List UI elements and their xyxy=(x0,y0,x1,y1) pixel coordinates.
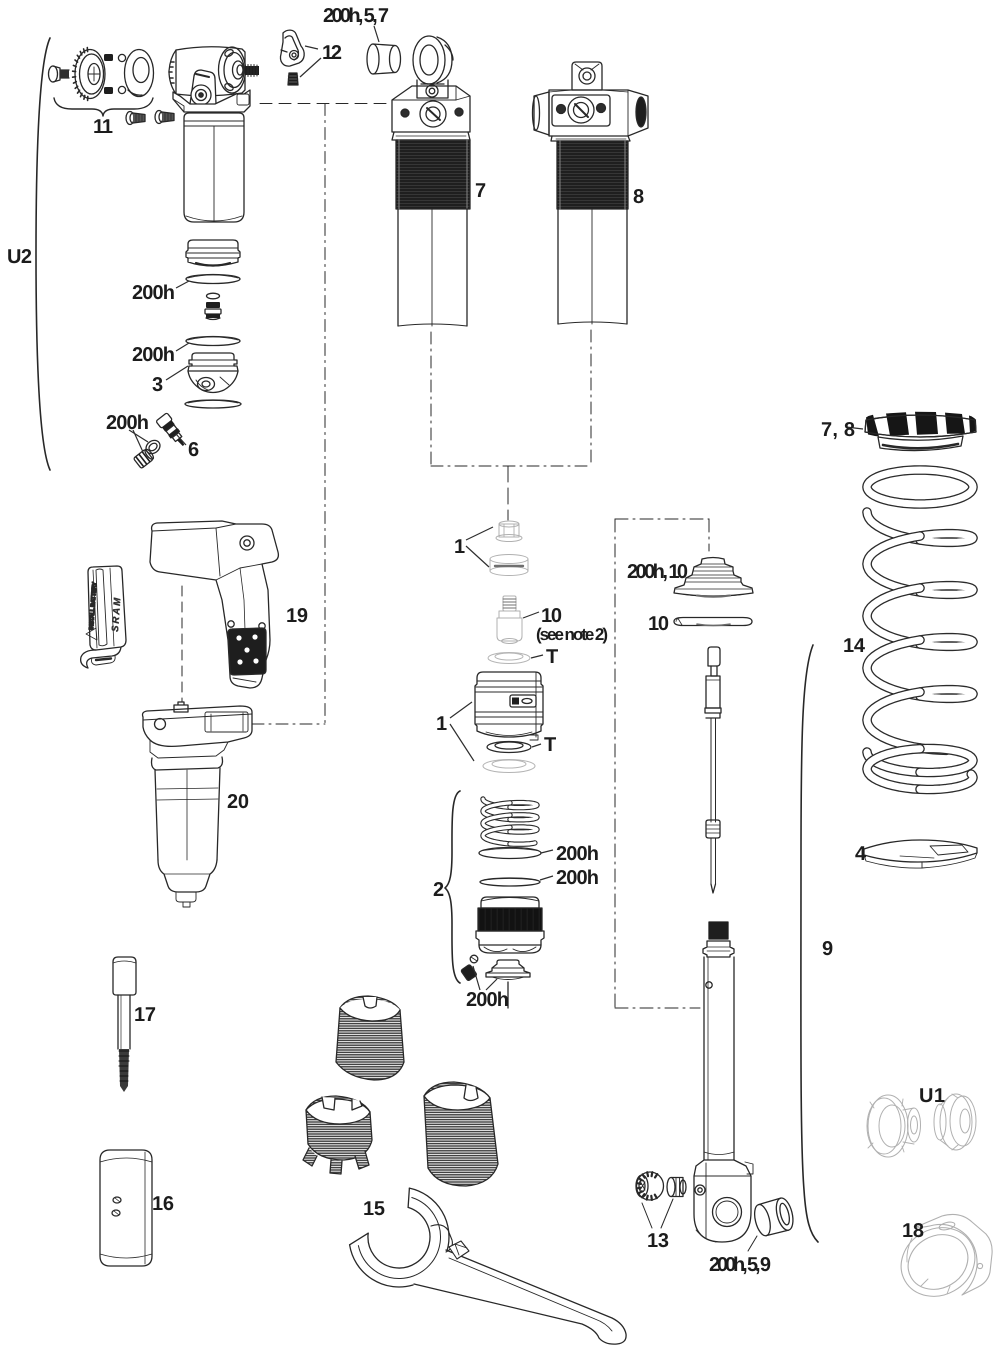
svg-text:200h, 10: 200h, 10 xyxy=(627,561,688,583)
svg-text:3: 3 xyxy=(152,374,163,396)
svg-text:U1: U1 xyxy=(919,1085,945,1107)
svg-text:9: 9 xyxy=(822,938,833,960)
svg-text:200h: 200h xyxy=(556,867,599,889)
svg-text:10: 10 xyxy=(648,613,669,635)
svg-text:4: 4 xyxy=(855,843,867,865)
svg-text:14: 14 xyxy=(843,635,866,657)
svg-text:200h: 200h xyxy=(132,344,175,366)
svg-text:(see note 2): (see note 2) xyxy=(536,625,608,644)
svg-text:17: 17 xyxy=(134,1004,156,1026)
svg-text:18: 18 xyxy=(902,1220,924,1242)
svg-text:T: T xyxy=(546,646,558,668)
svg-text:11: 11 xyxy=(93,116,113,138)
svg-text:16: 16 xyxy=(152,1193,174,1215)
svg-text:200h, 5, 7: 200h, 5, 7 xyxy=(323,5,389,27)
svg-text:19: 19 xyxy=(286,605,308,627)
svg-text:200h: 200h xyxy=(466,989,509,1011)
svg-text:8: 8 xyxy=(633,186,644,208)
svg-text:13: 13 xyxy=(647,1230,669,1252)
svg-text:U2: U2 xyxy=(7,246,32,268)
svg-text:15: 15 xyxy=(363,1198,385,1220)
svg-text:200h: 200h xyxy=(556,843,599,865)
svg-text:T: T xyxy=(544,734,556,756)
svg-text:20: 20 xyxy=(227,791,249,813)
svg-text:2: 2 xyxy=(433,879,444,901)
svg-text:12: 12 xyxy=(322,42,342,64)
svg-text:200h, 5, 9: 200h, 5, 9 xyxy=(709,1254,771,1276)
svg-text:7, 8: 7, 8 xyxy=(821,419,855,441)
svg-text:200h: 200h xyxy=(132,282,175,304)
svg-text:7: 7 xyxy=(475,180,486,202)
svg-text:10: 10 xyxy=(541,605,562,627)
svg-text:1: 1 xyxy=(436,713,447,735)
svg-text:6: 6 xyxy=(188,439,199,461)
svg-text:1: 1 xyxy=(454,536,465,558)
svg-text:200h: 200h xyxy=(106,412,149,434)
